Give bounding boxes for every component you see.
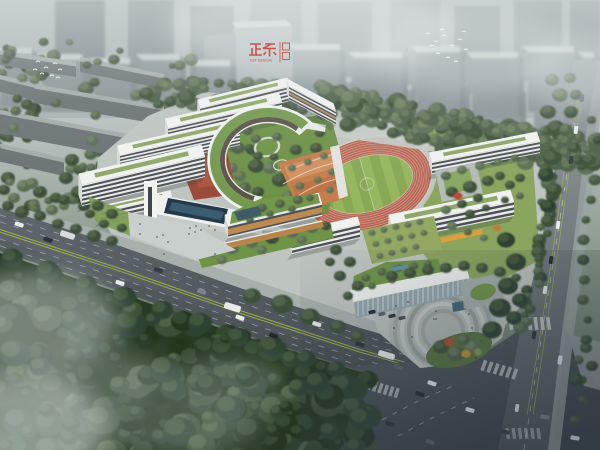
svg-text:EST DESIGN: EST DESIGN bbox=[250, 59, 272, 63]
